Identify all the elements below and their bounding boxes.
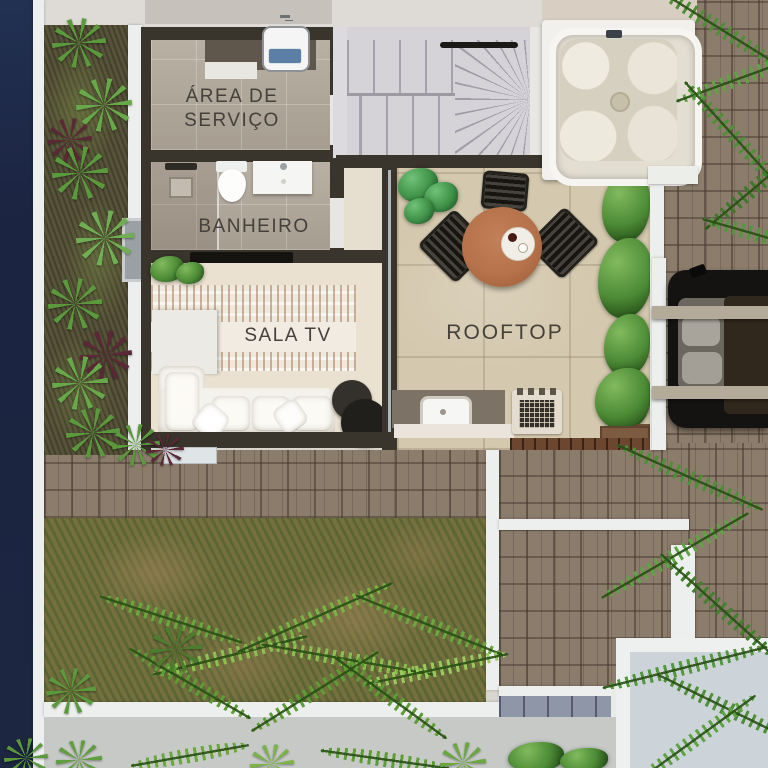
navy-site-border	[0, 0, 33, 768]
wall-west	[141, 27, 151, 450]
room-label-area-servico-line1: ÁREA DE	[186, 86, 279, 108]
shrub	[150, 626, 202, 672]
hot-tub-control-panel	[606, 30, 622, 38]
carport-post	[652, 258, 666, 450]
shrub	[560, 748, 608, 768]
bbq-grill-grate	[519, 400, 555, 428]
pergola-beam	[652, 386, 768, 399]
hot-tub-center-drain	[610, 92, 630, 112]
stair-winders	[455, 40, 530, 155]
shrub	[52, 146, 108, 200]
floor-plan-render: ÁREA DE SERVIÇO BANHEIRO SALA TV	[0, 0, 768, 768]
yard-ledge	[499, 519, 689, 530]
left-boundary-wall	[33, 0, 44, 768]
counter-shelf	[205, 62, 257, 79]
shrub	[146, 434, 184, 466]
hot-tub-step	[648, 166, 698, 184]
cup	[518, 243, 528, 253]
pergola-beam	[652, 306, 768, 319]
shrub	[46, 668, 96, 714]
vanity-basin-dot	[281, 179, 286, 184]
shrub	[48, 278, 102, 330]
stair-east-wall	[530, 27, 542, 158]
bbq-knobs	[517, 388, 557, 395]
outdoor-sink-drain	[440, 409, 446, 415]
tv	[190, 252, 293, 263]
counter-ledge	[394, 424, 514, 438]
brick-paving-strip	[44, 450, 488, 518]
car-seat	[682, 316, 720, 346]
room-label-rooftop: ROOFTOP	[446, 321, 563, 345]
shrub	[76, 210, 134, 266]
stair-landing	[333, 27, 347, 158]
vanity-faucet-icon	[280, 163, 287, 170]
room-label-sala-tv: SALA TV	[244, 325, 331, 347]
hall-floor	[344, 162, 382, 262]
laundry-sink-basin	[268, 48, 302, 64]
shrub	[52, 356, 108, 410]
shrub	[52, 18, 106, 68]
dining-chair	[480, 170, 529, 212]
car-seat	[682, 352, 722, 384]
faucet-icon	[280, 15, 290, 18]
handrail	[440, 42, 518, 48]
room-label-banheiro: BANHEIRO	[198, 216, 309, 238]
yard-wall-small	[499, 686, 614, 696]
room-label-area-servico-line2: SERVIÇO	[184, 110, 280, 132]
floor-drain	[169, 177, 193, 198]
top-concrete-band	[145, 0, 332, 24]
wall-stairs-south	[336, 155, 548, 168]
glass-pane	[388, 170, 391, 442]
sideboard	[152, 310, 217, 374]
shower-head-icon	[165, 163, 197, 170]
door-banheiro	[330, 198, 344, 248]
cup	[508, 233, 517, 242]
